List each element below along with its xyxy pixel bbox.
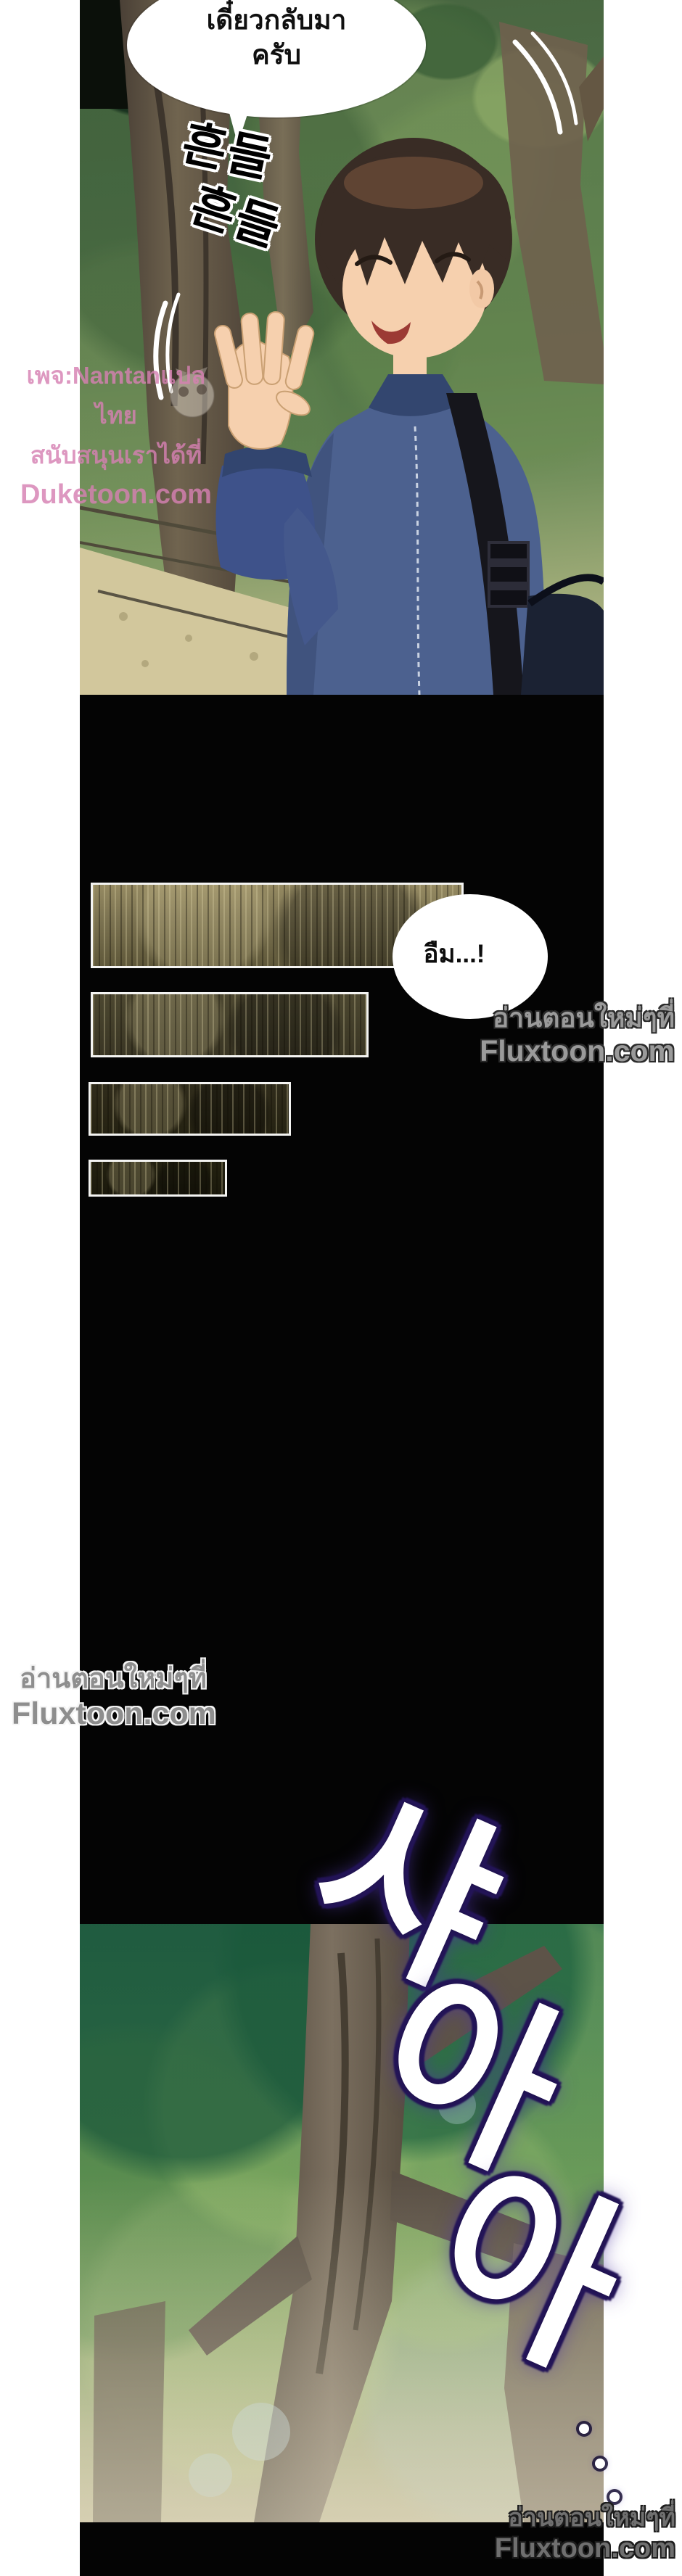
- fluxtoon-watermark-site: Fluxtoon.com: [12, 1696, 215, 1732]
- shoulder-bag: [521, 594, 604, 695]
- bar-texture: [93, 994, 366, 1055]
- comic-page: เดี๋ยวกลับมา ครับ 흔들 흔들 เพจ:Namtanแปลไทย…: [0, 0, 682, 2576]
- translator-watermark-line2: สนับสนุนเราได้ที่: [9, 435, 223, 475]
- tree-trunk-main: [254, 1924, 410, 2522]
- tree-branch-left: [189, 2236, 312, 2356]
- redacted-bar-2: [91, 992, 369, 1057]
- fluxtoon-watermark-left: อ่านตอนใหม่ๆที่ Fluxtoon.com: [12, 1662, 215, 1732]
- bar-texture: [91, 1162, 225, 1194]
- trailing-dot: [609, 2492, 620, 2502]
- trailing-dot: [595, 2459, 605, 2469]
- speech-line-1: เดี๋ยวกลับมา: [127, 3, 426, 38]
- tree-trunk-left-lower: [93, 2301, 165, 2522]
- fluxtoon-watermark-line1: อ่านตอนใหม่ๆที่: [428, 1002, 675, 1034]
- fluxtoon-watermark-site: Fluxtoon.com: [428, 1034, 675, 1068]
- strap-buckle: [489, 542, 528, 606]
- translator-watermark-line1: เพจ:Namtanแปลไทย: [9, 355, 223, 435]
- bar-texture: [91, 1084, 289, 1134]
- fluxtoon-watermark-line1: อ่านตอนใหม่ๆที่: [461, 2503, 675, 2532]
- translator-watermark-site: Duketoon.com: [9, 475, 223, 515]
- redacted-bar-3: [89, 1082, 291, 1136]
- speech-bubble-top-text: เดี๋ยวกลับมา ครับ: [127, 3, 426, 73]
- sky-gap: [232, 2403, 290, 2461]
- sfx-shake-line1: 흔들: [178, 116, 278, 187]
- redacted-bar-4: [89, 1160, 227, 1197]
- fluxtoon-watermark-bottom: อ่านตอนใหม่ๆที่ Fluxtoon.com: [461, 2503, 675, 2564]
- fluxtoon-watermark-line1: อ่านตอนใหม่ๆที่: [12, 1662, 215, 1696]
- fluxtoon-watermark-right: อ่านตอนใหม่ๆที่ Fluxtoon.com: [428, 1002, 675, 1068]
- translator-watermark: เพจ:Namtanแปลไทย สนับสนุนเราได้ที่ Duket…: [9, 355, 223, 515]
- sky-gap: [189, 2453, 232, 2497]
- trailing-dot: [579, 2424, 589, 2434]
- speech-line-2: ครับ: [127, 38, 426, 73]
- speech-bubble-hmm-text: อืม...!: [393, 934, 516, 974]
- fluxtoon-watermark-site: Fluxtoon.com: [461, 2532, 675, 2564]
